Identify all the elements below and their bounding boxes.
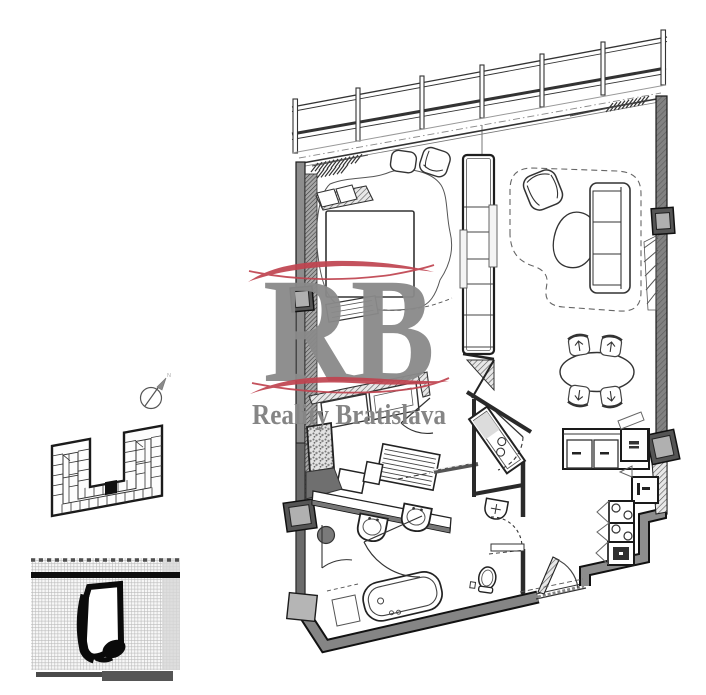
svg-text:Reality Bratislava: Reality Bratislava — [252, 398, 446, 430]
svg-text:N: N — [167, 373, 171, 379]
